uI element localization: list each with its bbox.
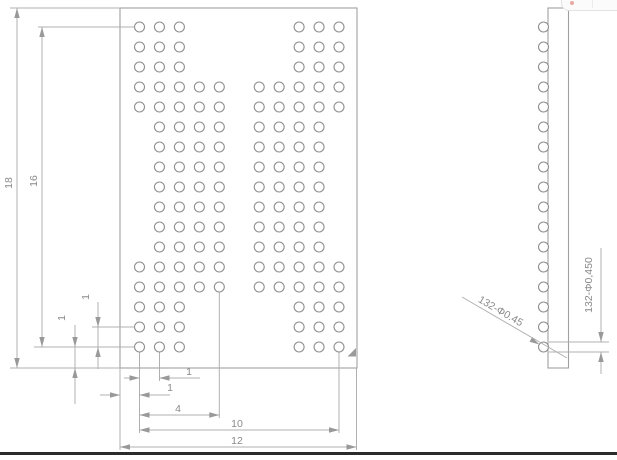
solder-ball xyxy=(334,42,344,52)
dimension-arrowhead xyxy=(39,337,44,347)
dimension-arrowhead xyxy=(598,352,603,362)
solder-ball xyxy=(214,122,224,132)
solder-ball xyxy=(274,162,284,172)
solder-ball xyxy=(135,62,145,72)
solder-ball xyxy=(314,262,324,272)
dimension-arrowhead xyxy=(14,358,19,368)
solder-ball xyxy=(334,82,344,92)
solder-ball xyxy=(294,182,304,192)
solder-ball xyxy=(154,122,164,132)
dimension-arrowhead xyxy=(347,444,357,449)
solder-ball xyxy=(154,182,164,192)
solder-ball xyxy=(294,162,304,172)
solder-ball xyxy=(274,262,284,272)
solder-ball xyxy=(314,102,324,112)
solder-ball xyxy=(194,142,204,152)
solder-ball xyxy=(154,22,164,32)
solder-ball xyxy=(314,122,324,132)
solder-ball xyxy=(174,222,184,232)
solder-ball xyxy=(314,22,324,32)
solder-ball xyxy=(194,262,204,272)
solder-ball xyxy=(154,142,164,152)
dimension-arrowhead xyxy=(72,337,77,347)
solder-ball xyxy=(254,162,264,172)
solder-ball xyxy=(174,182,184,192)
solder-ball xyxy=(254,222,264,232)
solder-ball xyxy=(214,242,224,252)
solder-ball-side xyxy=(539,102,549,112)
solder-ball xyxy=(314,182,324,192)
solder-ball xyxy=(294,342,304,352)
solder-ball xyxy=(314,302,324,312)
dim-ball-span-horizontal: 10 xyxy=(231,418,243,430)
solder-ball xyxy=(334,342,344,352)
solder-ball-side xyxy=(539,182,549,192)
solder-ball xyxy=(174,22,184,32)
solder-ball xyxy=(254,202,264,212)
solder-ball xyxy=(334,282,344,292)
solder-ball xyxy=(154,42,164,52)
plan-ball-grid xyxy=(135,22,345,352)
solder-ball xyxy=(274,82,284,92)
solder-ball-side xyxy=(539,222,549,232)
solder-ball xyxy=(135,42,145,52)
solder-ball xyxy=(154,222,164,232)
solder-ball xyxy=(154,82,164,92)
solder-ball xyxy=(174,42,184,52)
solder-ball xyxy=(154,262,164,272)
solder-ball-side xyxy=(539,142,549,152)
solder-ball xyxy=(214,102,224,112)
solder-ball xyxy=(294,282,304,292)
solder-ball xyxy=(314,342,324,352)
solder-ball xyxy=(334,322,344,332)
solder-ball xyxy=(274,202,284,212)
dimension-arrowhead xyxy=(140,392,150,397)
solder-ball xyxy=(274,142,284,152)
dimension-arrowhead xyxy=(110,392,120,397)
dim-span-4: 4 xyxy=(175,403,181,415)
solder-ball xyxy=(294,262,304,272)
solder-ball xyxy=(135,282,145,292)
solder-ball xyxy=(154,322,164,332)
side-view xyxy=(539,8,569,368)
dim-pitch-horizontal: 1 xyxy=(186,366,192,378)
solder-ball xyxy=(294,22,304,32)
dim-ball-span-vertical: 16 xyxy=(28,175,40,187)
dimension-arrowhead xyxy=(72,368,77,378)
solder-ball-side xyxy=(539,242,549,252)
solder-ball xyxy=(194,222,204,232)
solder-ball xyxy=(135,22,145,32)
solder-ball xyxy=(154,162,164,172)
solder-ball xyxy=(294,62,304,72)
solder-ball xyxy=(154,302,164,312)
solder-ball xyxy=(194,82,204,92)
solder-ball xyxy=(214,222,224,232)
solder-ball xyxy=(154,102,164,112)
solder-ball xyxy=(194,202,204,212)
solder-ball xyxy=(294,242,304,252)
solder-ball xyxy=(174,322,184,332)
solder-ball xyxy=(174,122,184,132)
solder-ball xyxy=(294,302,304,312)
solder-ball xyxy=(254,102,264,112)
solder-ball xyxy=(274,102,284,112)
solder-ball xyxy=(294,42,304,52)
dimension-arrowhead xyxy=(95,317,100,327)
solder-ball-side xyxy=(539,282,549,292)
solder-ball xyxy=(334,22,344,32)
dimension-arrowhead xyxy=(130,375,140,380)
solder-ball xyxy=(254,182,264,192)
solder-ball xyxy=(254,282,264,292)
solder-ball xyxy=(274,242,284,252)
solder-ball xyxy=(214,82,224,92)
solder-ball xyxy=(194,242,204,252)
solder-ball xyxy=(174,162,184,172)
solder-ball xyxy=(274,182,284,192)
solder-ball xyxy=(174,142,184,152)
solder-ball xyxy=(294,202,304,212)
solder-ball-side xyxy=(539,202,549,212)
cad-drawing-canvas: 18 16 1 1 1 1 4 10 12 132-Φ0.45 132-Φ0,4… xyxy=(0,0,617,460)
solder-ball xyxy=(294,142,304,152)
pin1-marker xyxy=(348,348,357,357)
dimension-arrowhead xyxy=(329,427,339,432)
dimension-arrowhead xyxy=(120,444,130,449)
solder-ball xyxy=(194,282,204,292)
solder-ball xyxy=(194,102,204,112)
solder-ball-side xyxy=(539,262,549,272)
side-ball-column xyxy=(539,22,549,352)
dimension-arrowhead xyxy=(14,8,19,18)
package-outline-side xyxy=(548,8,569,368)
solder-ball xyxy=(214,142,224,152)
solder-ball xyxy=(214,282,224,292)
dimension-arrowhead xyxy=(140,412,150,417)
solder-ball xyxy=(314,242,324,252)
dimension-arrowhead xyxy=(39,27,44,37)
solder-ball xyxy=(194,122,204,132)
solder-ball-side xyxy=(539,62,549,72)
solder-ball xyxy=(154,202,164,212)
dim-edge-offset-vertical: 1 xyxy=(56,315,68,321)
dimension-arrowhead xyxy=(140,427,150,432)
solder-ball xyxy=(334,102,344,112)
dimension-arrowhead xyxy=(95,347,100,357)
solder-ball xyxy=(314,142,324,152)
dimension-line xyxy=(462,297,567,358)
dim-package-height: 18 xyxy=(3,177,15,189)
plan-view xyxy=(120,8,357,368)
solder-ball xyxy=(274,282,284,292)
solder-ball xyxy=(334,262,344,272)
solder-ball xyxy=(174,342,184,352)
solder-ball xyxy=(294,102,304,112)
solder-ball xyxy=(174,242,184,252)
solder-ball xyxy=(174,62,184,72)
solder-ball xyxy=(294,322,304,332)
solder-ball xyxy=(154,62,164,72)
technical-drawing: 18 16 1 1 1 1 4 10 12 132-Φ0.45 132-Φ0,4… xyxy=(0,0,617,460)
solder-ball-side xyxy=(539,302,549,312)
dimension-arrowhead xyxy=(160,375,170,380)
solder-ball xyxy=(174,282,184,292)
solder-ball xyxy=(254,82,264,92)
solder-ball xyxy=(254,242,264,252)
solder-ball-side xyxy=(539,322,549,332)
solder-ball xyxy=(254,262,264,272)
toolbar-separator xyxy=(592,0,593,8)
toolbar-dot-icon xyxy=(570,1,574,5)
solder-ball xyxy=(254,142,264,152)
solder-ball xyxy=(294,222,304,232)
solder-ball xyxy=(334,302,344,312)
dimension-arrowhead xyxy=(598,332,603,342)
solder-ball xyxy=(314,202,324,212)
solder-ball xyxy=(334,62,344,72)
solder-ball xyxy=(314,162,324,172)
solder-ball xyxy=(154,342,164,352)
solder-ball xyxy=(214,182,224,192)
solder-ball xyxy=(314,82,324,92)
solder-ball xyxy=(214,202,224,212)
solder-ball xyxy=(194,162,204,172)
dim-pitch-vertical: 1 xyxy=(80,294,92,300)
solder-ball-side xyxy=(539,82,549,92)
dimension-lines xyxy=(10,8,609,450)
solder-ball-side xyxy=(539,42,549,52)
solder-ball-side xyxy=(539,162,549,172)
solder-ball-side xyxy=(539,342,549,352)
solder-ball xyxy=(135,322,145,332)
solder-ball xyxy=(174,262,184,272)
solder-ball xyxy=(294,82,304,92)
solder-ball xyxy=(314,222,324,232)
solder-ball xyxy=(135,102,145,112)
solder-ball xyxy=(314,62,324,72)
dim-package-width: 12 xyxy=(231,435,243,447)
solder-ball xyxy=(214,162,224,172)
solder-ball xyxy=(294,122,304,132)
solder-ball xyxy=(314,322,324,332)
solder-ball xyxy=(174,102,184,112)
solder-ball xyxy=(135,82,145,92)
ball-count-callout: 132-Φ0.45 xyxy=(476,294,525,330)
solder-ball xyxy=(314,42,324,52)
solder-ball xyxy=(135,262,145,272)
bottom-border-bar xyxy=(0,452,617,455)
solder-ball xyxy=(194,182,204,192)
solder-ball xyxy=(154,242,164,252)
ball-diameter-dim: 132-Φ0,450 xyxy=(583,257,595,313)
solder-ball xyxy=(135,302,145,312)
solder-ball xyxy=(254,122,264,132)
solder-ball xyxy=(274,222,284,232)
solder-ball xyxy=(154,282,164,292)
solder-ball xyxy=(135,342,145,352)
solder-ball-side xyxy=(539,22,549,32)
solder-ball xyxy=(174,302,184,312)
solder-ball-side xyxy=(539,122,549,132)
solder-ball xyxy=(274,122,284,132)
solder-ball xyxy=(174,202,184,212)
solder-ball xyxy=(174,82,184,92)
solder-ball xyxy=(314,282,324,292)
dim-edge-offset-horizontal: 1 xyxy=(167,382,173,394)
dimension-arrowhead xyxy=(209,412,219,417)
solder-ball xyxy=(214,262,224,272)
